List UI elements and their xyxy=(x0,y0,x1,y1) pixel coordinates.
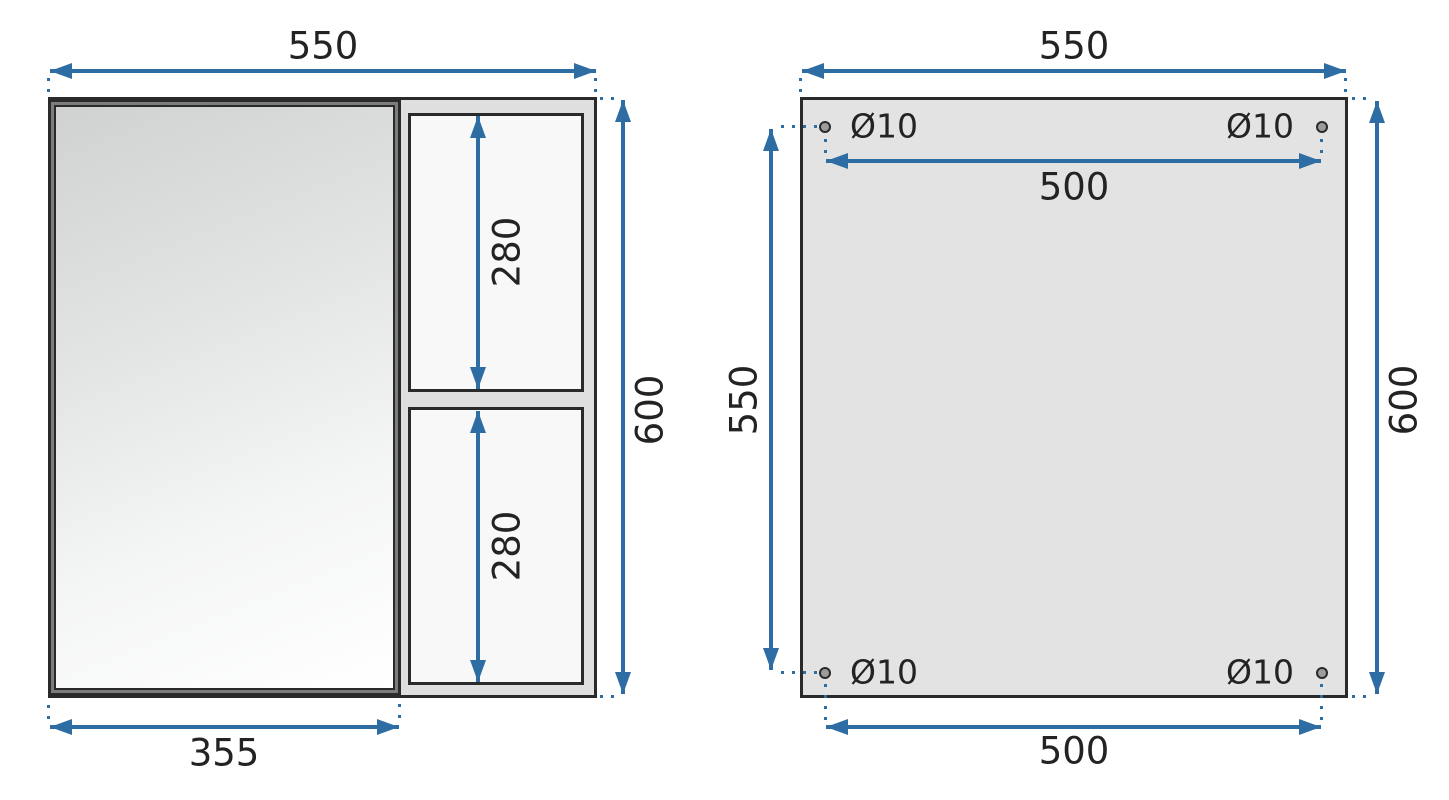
dim-arrow-back-height xyxy=(1375,101,1379,694)
extension-line xyxy=(799,78,802,96)
hole-diameter-label-top-left: Ø10 xyxy=(850,110,918,143)
dim-arrow-hole-vertical-span xyxy=(769,129,773,670)
dim-arrow-back-width xyxy=(802,69,1346,73)
extension-line xyxy=(1352,97,1372,100)
hole-diameter-label-bottom-left: Ø10 xyxy=(850,656,918,689)
dim-arrow-hole-span-bottom xyxy=(826,725,1321,729)
cabinet-back-view: Ø10 Ø10 Ø10 Ø10 550 500 550 600 500 xyxy=(0,0,1449,800)
dim-label-back-height: 600 xyxy=(1386,365,1423,436)
dim-label-hole-span-top: 500 xyxy=(1039,169,1110,206)
mounting-hole-top-left xyxy=(819,121,831,133)
mounting-hole-bottom-left xyxy=(819,667,831,679)
extension-line xyxy=(781,671,817,674)
dim-label-back-width: 550 xyxy=(1039,28,1110,65)
extension-line xyxy=(824,139,827,155)
extension-line xyxy=(781,125,817,128)
mounting-hole-top-right xyxy=(1316,121,1328,133)
extension-line xyxy=(1320,684,1323,722)
mounting-hole-bottom-right xyxy=(1316,667,1328,679)
hole-diameter-label-bottom-right: Ø10 xyxy=(1226,656,1294,689)
dim-arrow-hole-span-top xyxy=(826,159,1321,163)
dim-label-hole-span-bottom: 500 xyxy=(1039,733,1110,770)
dim-label-hole-vertical-span: 550 xyxy=(726,365,763,436)
extension-line xyxy=(1344,78,1347,96)
hole-diameter-label-top-right: Ø10 xyxy=(1226,110,1294,143)
extension-line xyxy=(1352,695,1372,698)
technical-drawing: 550 280 280 600 355 Ø10 Ø10 Ø10 Ø10 xyxy=(0,0,1449,800)
extension-line xyxy=(1320,139,1323,155)
extension-line xyxy=(824,684,827,722)
